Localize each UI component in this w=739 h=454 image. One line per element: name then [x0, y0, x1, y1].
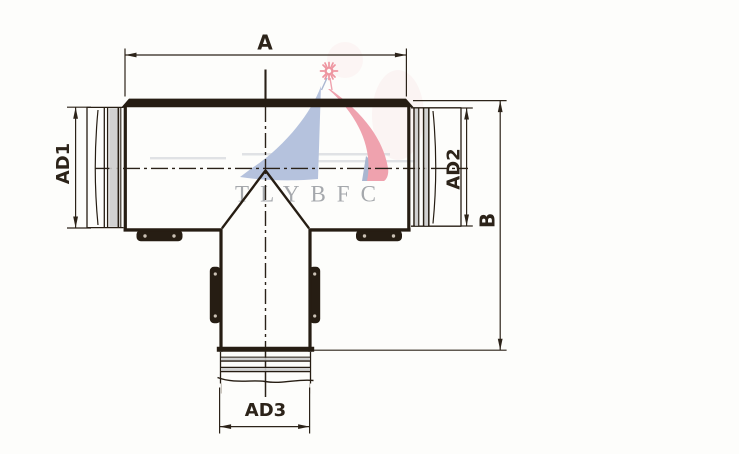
- rivet: [313, 272, 316, 275]
- bottom-spigot-rib-band: [221, 358, 310, 361]
- dimension-label-ad2: AD2: [444, 148, 465, 189]
- watermark-text: TLYBFC: [235, 182, 387, 207]
- technical-drawing-canvas: TLYBFC: [0, 0, 739, 454]
- left-spigot-rib-band: [109, 108, 117, 227]
- dimension-label-ad3: AD3: [245, 400, 286, 421]
- rivet: [214, 314, 217, 317]
- dimension-label-b: B: [476, 213, 500, 228]
- bottom-spigot-rib-band: [221, 368, 310, 371]
- rivet: [143, 234, 146, 237]
- rivet: [172, 234, 175, 237]
- dimension-label-a: A: [257, 31, 273, 55]
- top-flange-bar: [122, 99, 414, 108]
- rivet: [214, 272, 217, 275]
- wake-line: [150, 157, 226, 159]
- rivet: [313, 314, 316, 317]
- rivet: [392, 234, 395, 237]
- right-spigot-rib-band: [415, 109, 418, 226]
- dimension-label-ad1: AD1: [53, 143, 74, 184]
- rivet: [363, 234, 366, 237]
- right-spigot-rib-band: [425, 109, 428, 226]
